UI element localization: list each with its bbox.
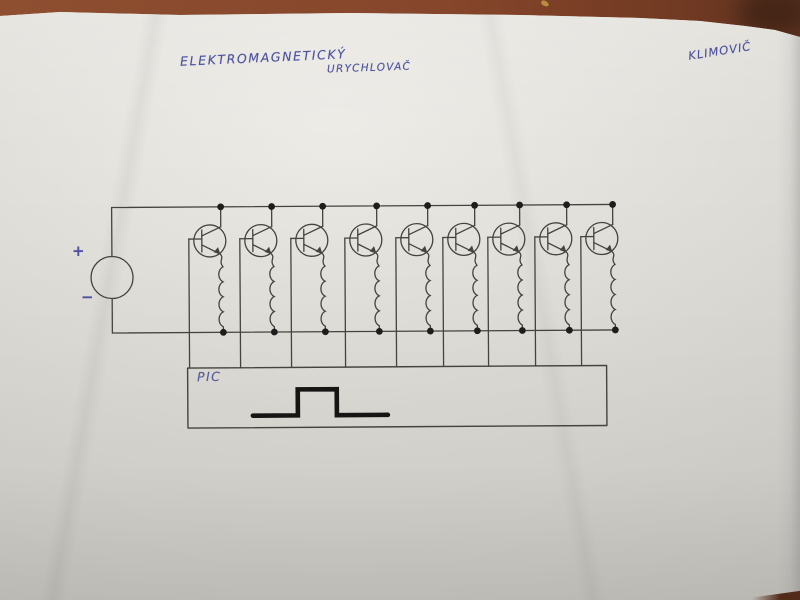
pic-label: PIC bbox=[197, 369, 222, 384]
transistor-coil-stage bbox=[535, 201, 573, 366]
bottom-rail bbox=[112, 330, 615, 333]
transistor-coil-stage bbox=[443, 202, 481, 367]
transistor-coil-stage bbox=[291, 203, 329, 368]
paper-sheet: ELEKTROMAGNETICKÝ URYCHLOVAČ KLIMOVIČ + … bbox=[0, 0, 800, 600]
source-plus-label: + bbox=[72, 242, 85, 260]
photo-of-schematic: ELEKTROMAGNETICKÝ URYCHLOVAČ KLIMOVIČ + … bbox=[0, 0, 800, 600]
transistor-coil-stage bbox=[396, 202, 434, 367]
transistor-coil-stage bbox=[581, 201, 619, 366]
transistor-coil-stage bbox=[240, 203, 278, 368]
stages bbox=[189, 201, 619, 368]
schematic-group bbox=[91, 201, 620, 429]
source-circle bbox=[91, 256, 133, 298]
power-source bbox=[91, 207, 134, 333]
circuit-drawing bbox=[0, 0, 800, 600]
transistor-coil-stage bbox=[189, 203, 227, 368]
clock-pulse-waveform bbox=[253, 389, 388, 416]
pic-box bbox=[188, 365, 607, 428]
transistor-coil-stage bbox=[345, 202, 383, 367]
transistor-coil-stage bbox=[488, 202, 526, 367]
source-minus-label: − bbox=[81, 288, 94, 306]
top-rail bbox=[112, 204, 613, 207]
table-speck bbox=[540, 0, 549, 7]
